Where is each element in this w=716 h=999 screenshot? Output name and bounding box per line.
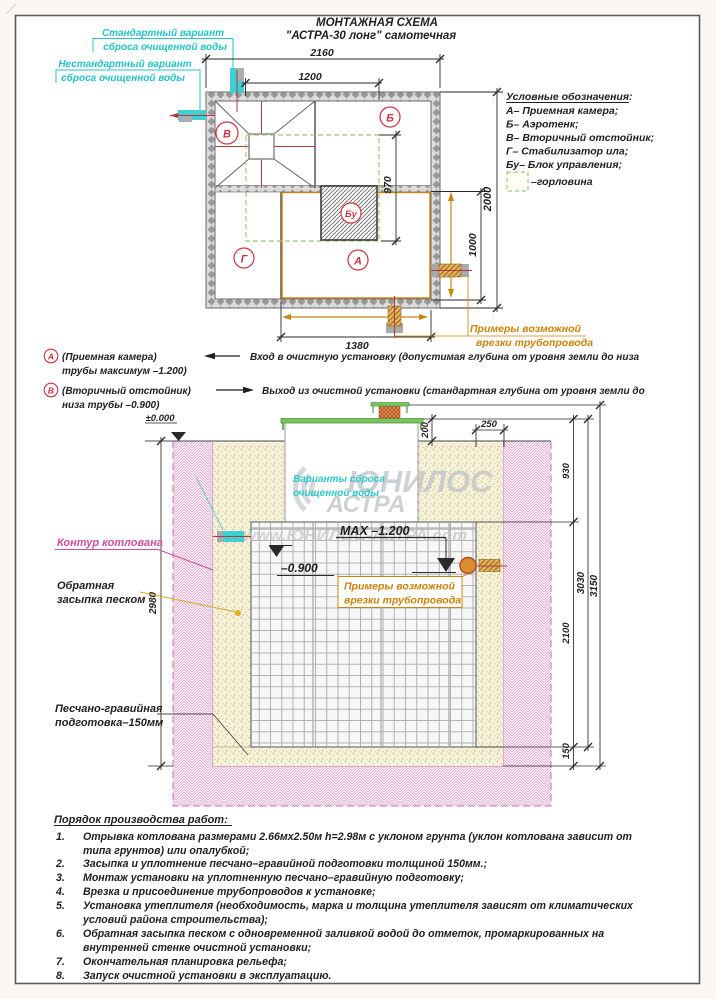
svg-text:Нестандартный вариант: Нестандартный вариант [58,59,191,70]
svg-text:Г– Стабилизатор ила;: Г– Стабилизатор ила; [506,146,628,158]
svg-text:Б: Б [386,113,394,125]
svg-text:низа трубы –0.900): низа трубы –0.900) [62,399,160,411]
svg-text:–0.900: –0.900 [281,561,318,575]
svg-text:Контур котлована: Контур котлована [57,537,163,549]
svg-text:Засыпка и уплотнение песчано–г: Засыпка и уплотнение песчано–гравийной п… [83,858,487,870]
svg-text:Условные обозначения:: Условные обозначения: [506,91,633,103]
svg-text:Врезка и присоединение трубопр: Врезка и присоединение трубопроводов к у… [83,886,376,898]
svg-text:(Приемная камера): (Приемная камера) [62,352,157,363]
svg-text:Вход в очистную установку (доп: Вход в очистную установку (допустимая гл… [250,351,640,363]
svg-text:Обратная: Обратная [57,580,115,592]
svg-text:2000: 2000 [482,186,494,212]
svg-text:Бу– Блок управления;: Бу– Блок управления; [506,159,622,171]
svg-text:подготовка–150мм: подготовка–150мм [55,717,163,729]
svg-text:Примеры возможной: Примеры возможной [470,323,582,335]
svg-text:3.: 3. [56,872,65,884]
svg-text:В: В [223,129,231,141]
svg-text:(Вторичный отстойник): (Вторичный отстойник) [62,386,192,397]
svg-text:А– Приемная камера;: А– Приемная камера; [505,105,618,117]
svg-text:Запуск очистной установки в эк: Запуск очистной установки в эксплуатацию… [83,970,332,982]
svg-text:970: 970 [382,176,394,194]
svg-text:Монтаж установки на уплотненну: Монтаж установки на уплотненную песчано–… [83,872,464,884]
svg-text:Примеры возможной: Примеры возможной [344,581,456,593]
svg-text:150: 150 [561,742,572,759]
svg-text:типа грунтов) или опалубкой;: типа грунтов) или опалубкой; [83,845,249,857]
svg-text:1.: 1. [56,831,65,843]
svg-text:1380: 1380 [345,340,369,352]
svg-text:3150: 3150 [589,574,600,597]
svg-text:1000: 1000 [467,233,479,257]
svg-text:условий района строительства);: условий района строительства); [82,914,268,926]
svg-text:200: 200 [420,421,431,439]
svg-text:±0.000: ±0.000 [146,413,176,424]
svg-text:930: 930 [561,462,572,479]
svg-text:МОНТАЖНАЯ СХЕМА: МОНТАЖНАЯ СХЕМА [316,17,438,29]
svg-text:Отрывка котлована размерами 2.: Отрывка котлована размерами 2.66мх2.50м … [83,831,632,843]
svg-text:5.: 5. [56,900,65,912]
svg-text:трубы максимум –1.200): трубы максимум –1.200) [62,365,187,377]
svg-text:МАХ –1.200: МАХ –1.200 [340,524,410,538]
svg-text:Варианты сброса: Варианты сброса [293,473,385,485]
svg-text:250: 250 [480,419,498,430]
svg-text:А: А [353,256,362,268]
svg-text:В: В [48,386,54,396]
svg-text:Выход из очистной установки (с: Выход из очистной установки (стандартная… [262,385,645,397]
svg-text:А: А [47,352,54,362]
svg-text:8.: 8. [56,970,65,982]
svg-text:Установка утеплителя (необходи: Установка утеплителя (необходимость, мар… [83,900,634,912]
svg-text:Обратная засыпка песком с одно: Обратная засыпка песком с одновременной … [83,928,604,940]
svg-text:сброса очищенной воды: сброса очищенной воды [103,41,227,53]
svg-text:В– Вторичный отстойник;: В– Вторичный отстойник; [506,132,654,144]
svg-text:7.: 7. [56,956,65,968]
svg-text:врезки трубопровода: врезки трубопровода [344,595,461,607]
svg-text:Порядок производства работ:: Порядок производства работ: [54,814,228,826]
svg-text:Песчано-гравийная: Песчано-гравийная [55,703,163,715]
svg-text:Б– Аэротенк;: Б– Аэротенк; [506,119,579,131]
svg-text:внутренней стенке очистной уст: внутренней стенке очистной установки; [83,942,311,954]
svg-text:сброса очищенной воды: сброса очищенной воды [61,72,185,84]
svg-text:1200: 1200 [298,71,322,83]
svg-text:–горловина: –горловина [531,176,593,188]
svg-text:3030: 3030 [576,571,587,594]
svg-text:2.: 2. [55,858,65,870]
svg-text:врезки трубопровода: врезки трубопровода [476,337,593,349]
svg-text:2160: 2160 [309,47,334,59]
svg-text:6.: 6. [56,928,65,940]
svg-text:Стандартный вариант: Стандартный вариант [102,28,224,39]
svg-text:4.: 4. [55,886,65,898]
svg-text:Бу: Бу [345,209,358,220]
svg-text:засыпка песком: засыпка песком [57,594,145,606]
svg-text:"АСТРА-30 лонг" самотечная: "АСТРА-30 лонг" самотечная [286,30,456,42]
svg-text:2100: 2100 [561,622,572,645]
svg-text:Окончательная планировка релье: Окончательная планировка рельефа; [83,956,287,968]
svg-text:очищенной воды: очищенной воды [293,488,379,499]
